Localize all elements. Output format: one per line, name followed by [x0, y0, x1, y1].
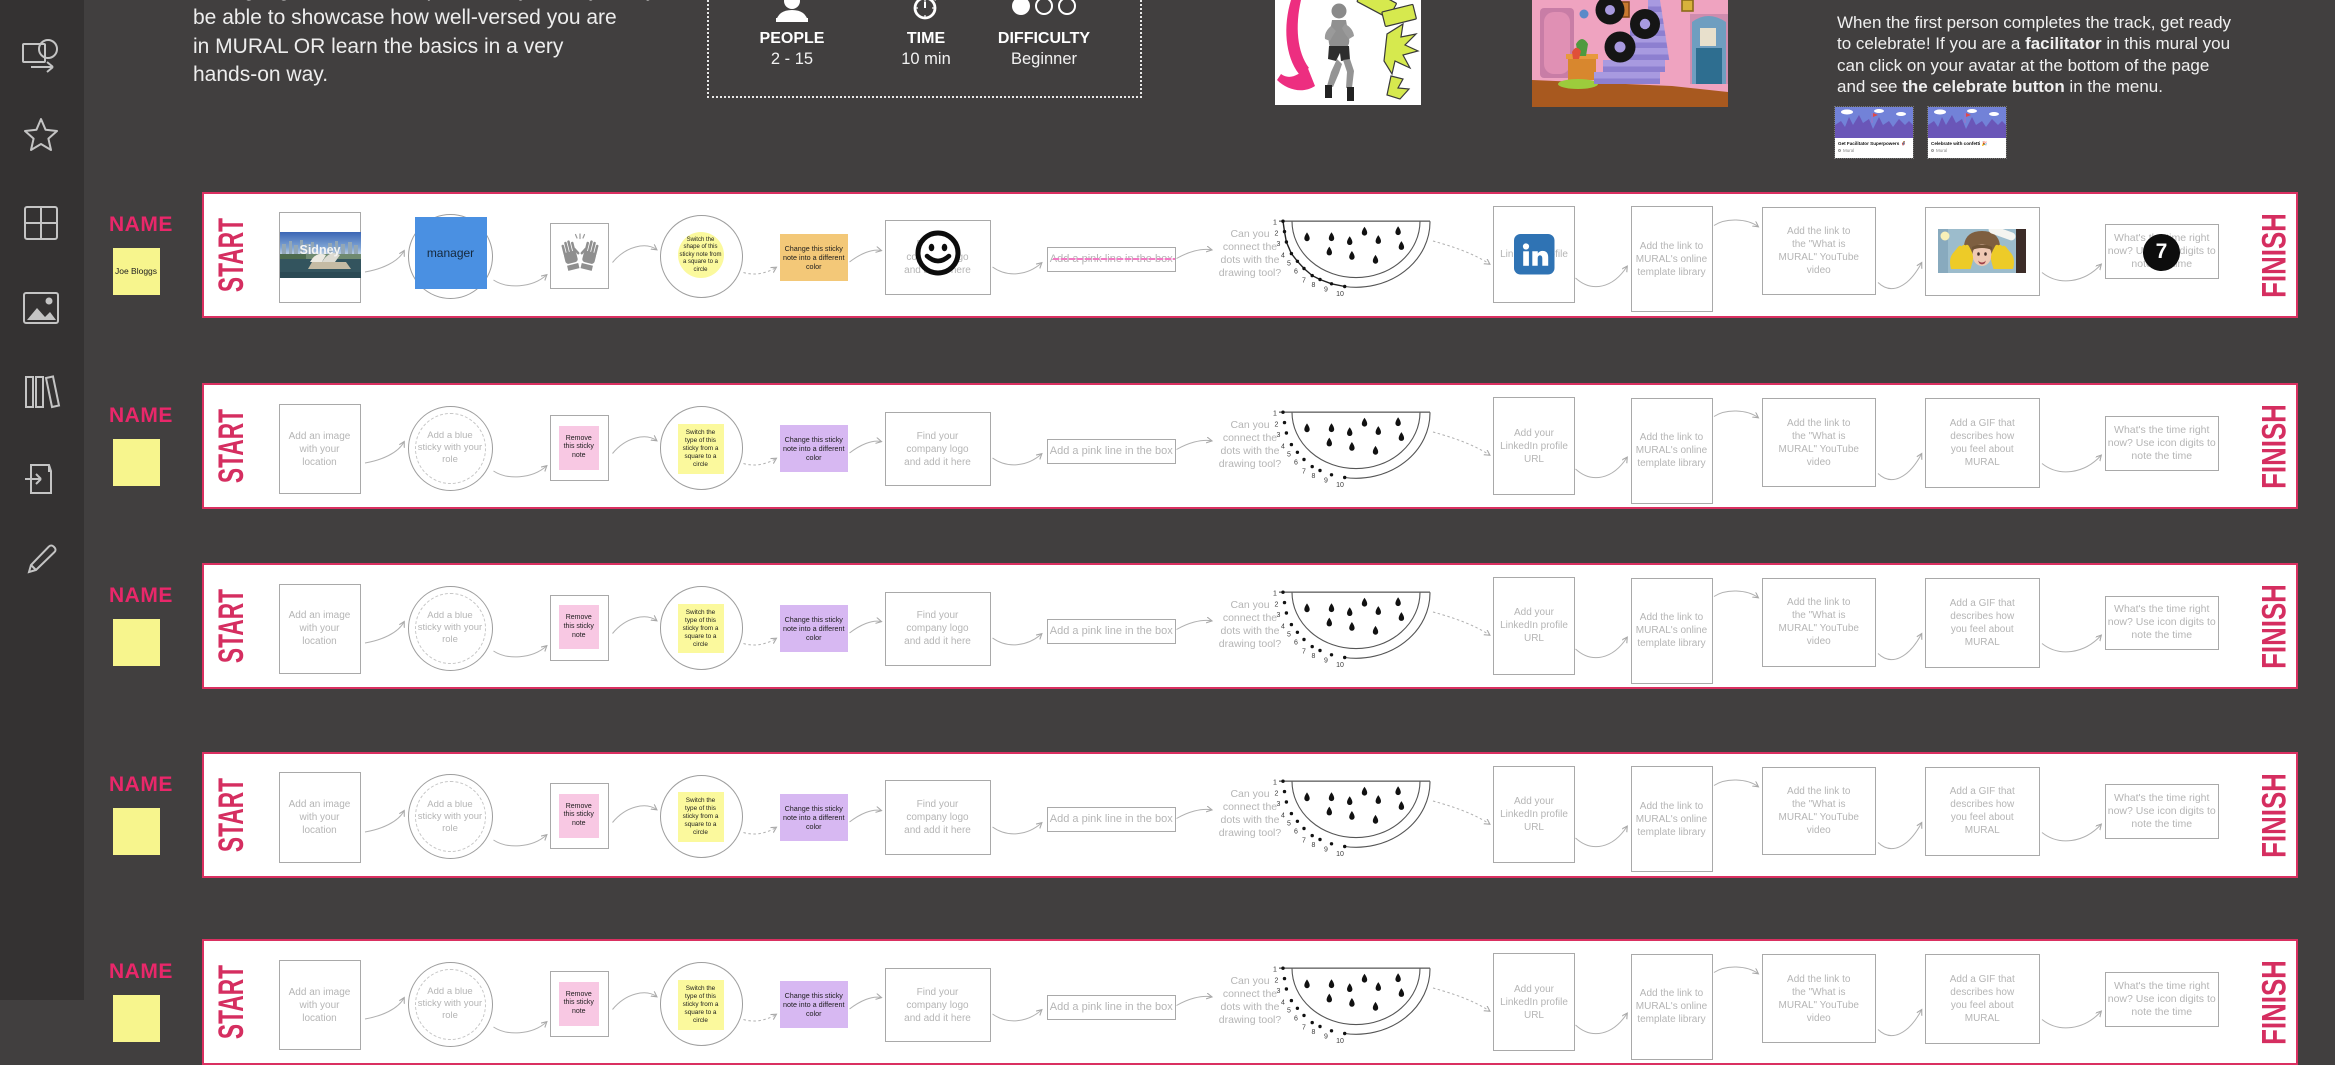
svg-text:1: 1 — [1273, 967, 1277, 974]
svg-text:9: 9 — [1324, 1034, 1328, 1041]
svg-text:2: 2 — [1275, 230, 1279, 237]
svg-text:4: 4 — [1281, 812, 1285, 819]
svg-text:7: 7 — [1302, 649, 1306, 656]
svg-text:3: 3 — [1277, 801, 1281, 808]
svg-text:3: 3 — [1277, 988, 1281, 995]
svg-text:2: 2 — [1275, 978, 1279, 985]
svg-text:9: 9 — [1324, 846, 1328, 853]
svg-text:5: 5 — [1287, 1008, 1291, 1015]
svg-text:8: 8 — [1312, 473, 1316, 480]
svg-text:4: 4 — [1281, 624, 1285, 631]
svg-text:2: 2 — [1275, 602, 1279, 609]
svg-text:6: 6 — [1294, 460, 1298, 467]
svg-text:5: 5 — [1287, 452, 1291, 459]
svg-text:7: 7 — [1302, 469, 1306, 476]
svg-text:3: 3 — [1277, 612, 1281, 619]
svg-text:Sidney: Sidney — [299, 243, 340, 257]
svg-text:10: 10 — [1336, 291, 1344, 298]
svg-text:10: 10 — [1336, 1038, 1344, 1045]
svg-text:7: 7 — [1302, 837, 1306, 844]
svg-text:9: 9 — [1324, 658, 1328, 665]
svg-text:2: 2 — [1275, 790, 1279, 797]
svg-text:3: 3 — [1277, 432, 1281, 439]
svg-text:8: 8 — [1312, 842, 1316, 849]
svg-text:10: 10 — [1336, 851, 1344, 858]
svg-text:8: 8 — [1312, 282, 1316, 289]
svg-text:1: 1 — [1273, 779, 1277, 786]
svg-text:6: 6 — [1294, 1016, 1298, 1023]
svg-text:1: 1 — [1273, 219, 1277, 226]
svg-text:4: 4 — [1281, 444, 1285, 451]
svg-text:1: 1 — [1273, 411, 1277, 418]
svg-text:8: 8 — [1312, 1029, 1316, 1036]
svg-text:2: 2 — [1275, 422, 1279, 429]
svg-text:5: 5 — [1287, 632, 1291, 639]
svg-text:9: 9 — [1324, 478, 1328, 485]
svg-text:6: 6 — [1294, 640, 1298, 647]
svg-text:5: 5 — [1287, 260, 1291, 267]
svg-text:6: 6 — [1294, 268, 1298, 275]
svg-text:5: 5 — [1287, 820, 1291, 827]
svg-text:4: 4 — [1281, 252, 1285, 259]
svg-text:7: 7 — [1302, 1025, 1306, 1032]
svg-text:3: 3 — [1277, 241, 1281, 248]
svg-text:8: 8 — [1312, 653, 1316, 660]
svg-text:4: 4 — [1281, 1000, 1285, 1007]
svg-text:1: 1 — [1273, 591, 1277, 598]
svg-text:7: 7 — [1302, 277, 1306, 284]
svg-text:10: 10 — [1336, 662, 1344, 669]
svg-text:9: 9 — [1324, 286, 1328, 293]
svg-text:6: 6 — [1294, 828, 1298, 835]
svg-text:10: 10 — [1336, 482, 1344, 489]
